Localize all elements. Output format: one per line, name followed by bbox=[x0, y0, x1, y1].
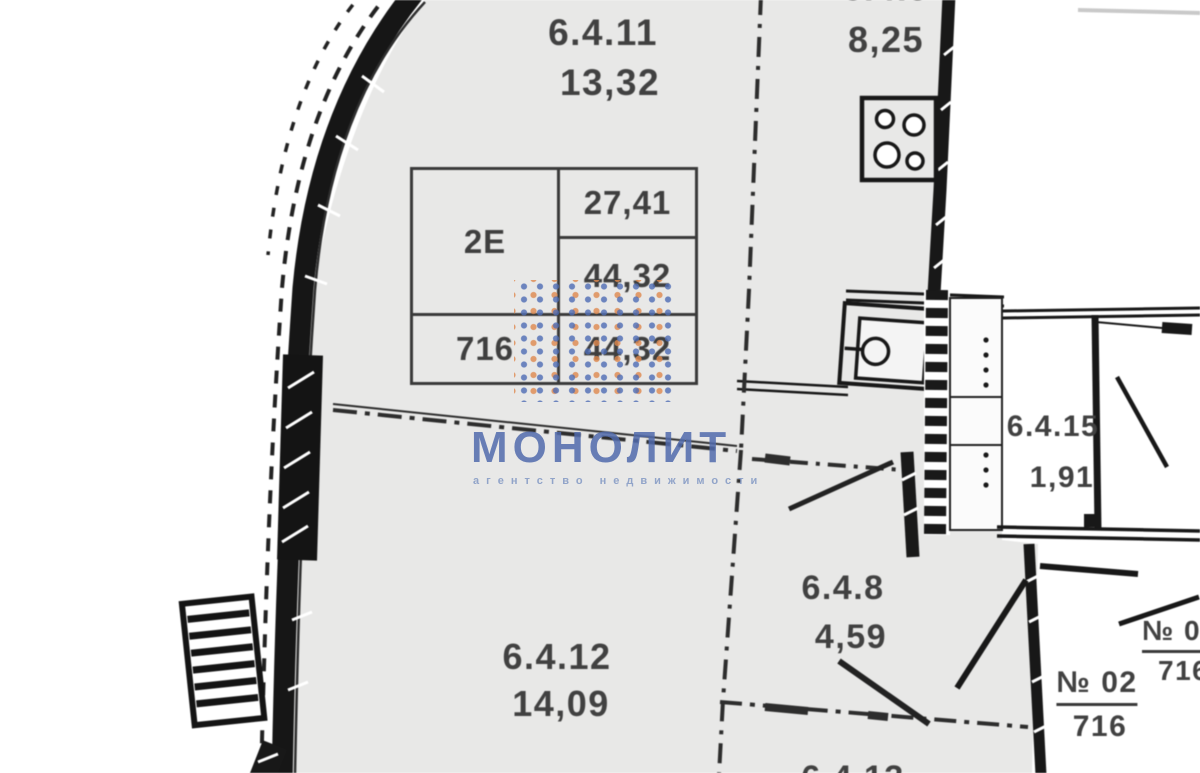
room-6413-id-partial: 6.4.13 bbox=[801, 761, 905, 773]
apt-02-label: № 02 bbox=[1056, 668, 1137, 706]
stove-icon bbox=[862, 98, 936, 180]
area-top-cell: 27,41 bbox=[560, 170, 695, 239]
right-rooms-walls bbox=[997, 10, 1200, 540]
room-6415-area: 1,91 bbox=[1030, 463, 1094, 493]
apt-partial-label: № 02 bbox=[1142, 617, 1200, 653]
radiator-icon bbox=[182, 597, 264, 726]
room-6411-id: 6.4.11 bbox=[548, 14, 658, 51]
sink-icon bbox=[839, 303, 936, 389]
apt-partial-number: 716 bbox=[1158, 657, 1200, 685]
room-6415-id: 6.4.15 bbox=[1007, 412, 1099, 442]
room-6412-area: 14,09 bbox=[512, 686, 610, 722]
watermark-logo-dots bbox=[514, 280, 672, 402]
watermark-brand: МОНОЛИТ bbox=[471, 426, 731, 470]
room-648-area: 4,59 bbox=[815, 620, 887, 654]
room-648-id: 6.4.8 bbox=[801, 571, 884, 605]
apt-02-number: 716 bbox=[1073, 712, 1128, 742]
utility-shaft bbox=[924, 290, 1002, 535]
room-6411-area: 13,32 bbox=[560, 64, 660, 101]
room-6412-id: 6.4.12 bbox=[502, 639, 611, 675]
floorplan-canvas: 6.4.11 13,32 6.4.9 8,25 6.4.12 14,09 6.4… bbox=[0, 0, 1200, 773]
room-kitchen-id-partial: 6.4.9 bbox=[842, 0, 930, 6]
room-kitchen-area: 8,25 bbox=[848, 22, 924, 58]
watermark-tagline: агентство недвижимости bbox=[473, 476, 764, 487]
